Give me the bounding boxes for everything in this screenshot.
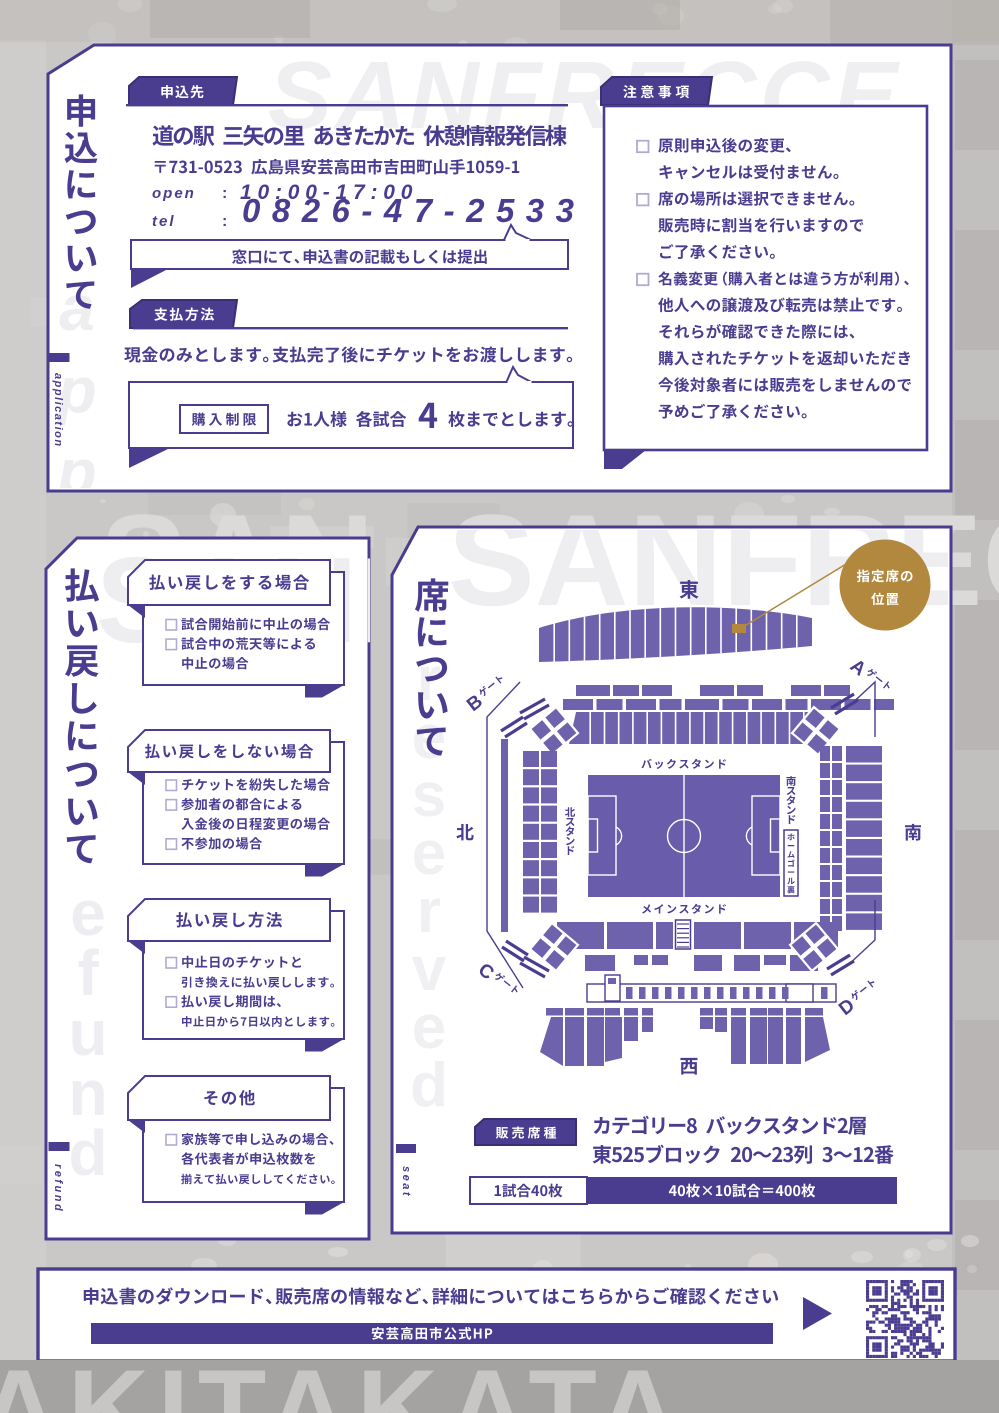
svg-text:seat: seat (400, 1166, 412, 1198)
svg-text::: : (222, 185, 227, 202)
svg-text::: : (222, 213, 227, 230)
svg-text:application: application (52, 373, 64, 448)
svg-text:open: open (152, 185, 196, 202)
svg-text:tel: tel (152, 213, 176, 230)
svg-text:d: d (410, 1051, 448, 1120)
svg-text:refund: refund (52, 1164, 64, 1213)
svg-text:0826-47-2533: 0826-47-2533 (242, 192, 586, 229)
svg-text:d: d (68, 1117, 107, 1189)
